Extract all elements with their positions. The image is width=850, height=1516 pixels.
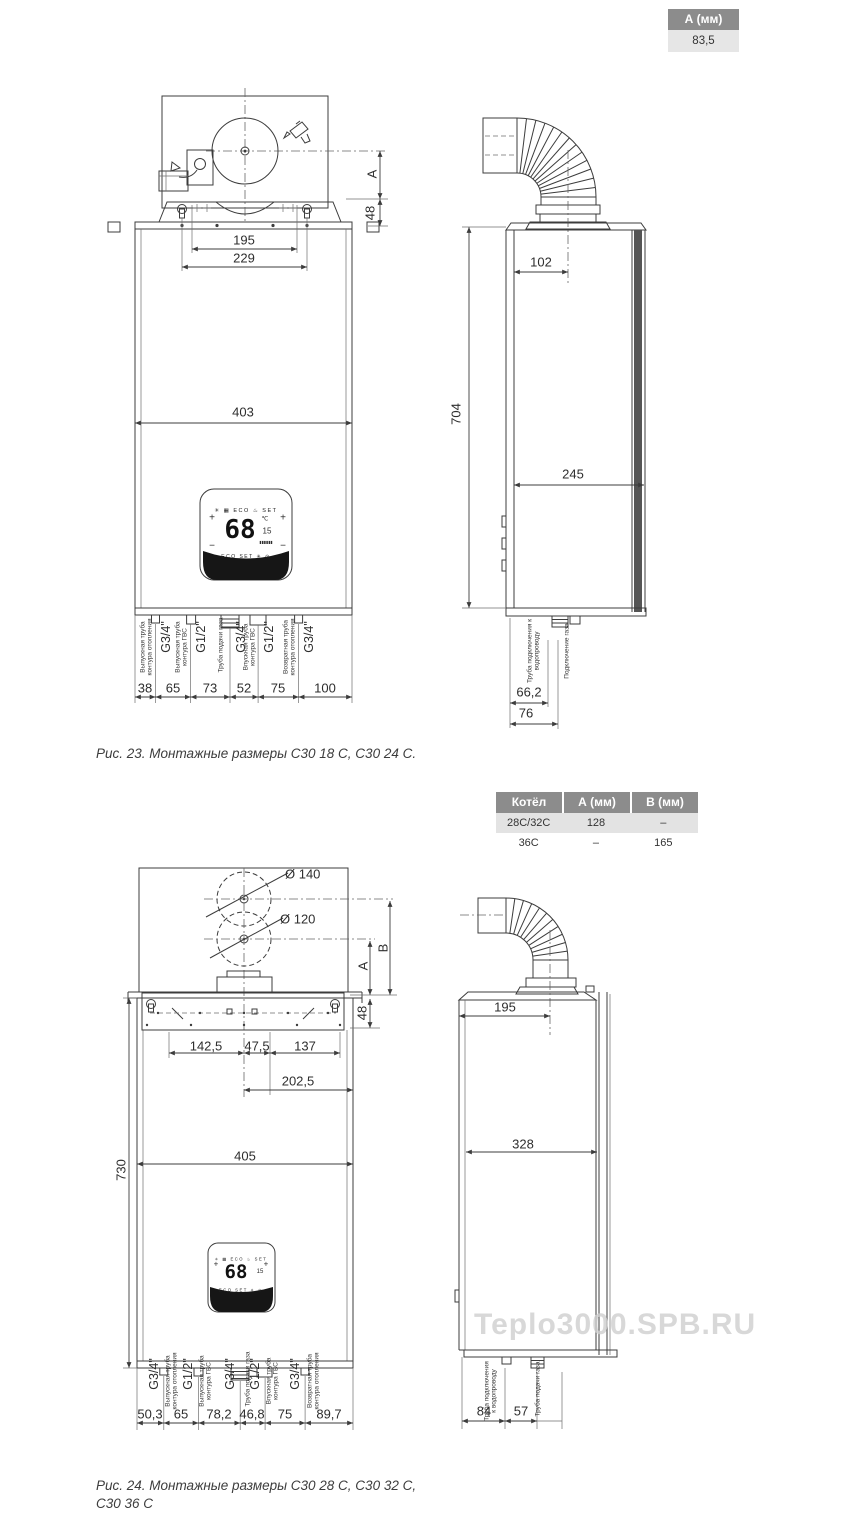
fig23-front-drawing xyxy=(108,88,388,703)
fig24-dim-195-label: 195 xyxy=(494,1000,516,1015)
table-cell: 36C xyxy=(496,833,561,853)
fig24-caption-line1: Рис. 24. Монтажные размеры С30 28 С, С30… xyxy=(96,1477,526,1495)
fig23-dim-102-label: 102 xyxy=(530,255,552,270)
fig23-dim-a-label: A xyxy=(365,170,380,179)
fig24-display-sub-value: 15 xyxy=(257,1269,264,1275)
fig23-dim-48-label: 48 xyxy=(363,206,378,220)
fig24-dim: 65 xyxy=(174,1407,188,1422)
fig24-front-drawing xyxy=(123,868,397,1430)
fig24-dim-47-5-label: 47,5 xyxy=(244,1039,269,1054)
fig23-dim: 75 xyxy=(271,681,285,696)
fig23-flue-elbow-ribs xyxy=(517,118,596,197)
fig23-dim: 65 xyxy=(166,681,180,696)
fig24-pipe-size: G3/4" xyxy=(288,1358,302,1390)
fig23-dim: 73 xyxy=(203,681,217,696)
fig23-pipe-desc: Выпускная труба контура отопления xyxy=(140,616,155,678)
fig23-water-pipe-label: Труба подключения к водопроводу xyxy=(527,618,542,684)
watermark: Teplo3000.SPB.RU xyxy=(474,1308,756,1342)
fig24-pipe-size: G1/2" xyxy=(181,1358,195,1390)
fig23-wall-rail xyxy=(634,230,642,612)
fig23-display-minus-left: − xyxy=(209,541,215,552)
fig24-dim-202-5-label: 202,5 xyxy=(282,1074,315,1089)
fig23-pipe-desc: Труба подачи газа xyxy=(217,616,224,674)
table-cell: – xyxy=(631,813,696,833)
fig23-dim-245-label: 245 xyxy=(562,467,584,482)
fig23-display-minus-right: − xyxy=(280,541,286,552)
fig23-pipe-size: G1/2" xyxy=(262,621,276,653)
boiler-table-header: Котёл xyxy=(496,792,562,813)
fig23-pipe-size: G3/4" xyxy=(159,621,173,653)
table-row: 28C/32C 128 – xyxy=(496,813,698,833)
fig23-display-bottom-icons: ECO SET ✳ ⊙ xyxy=(221,554,271,560)
flue-offset-table-value: 83,5 xyxy=(668,30,739,52)
fig23-display-plus-left: + xyxy=(209,513,215,524)
fig23-caption: Рис. 23. Монтажные размеры С30 18 С, С30… xyxy=(96,745,526,763)
fig24-side-drawing xyxy=(455,898,617,1429)
fig24-display-plus-left: + xyxy=(214,1260,219,1269)
fig23-dim-66-2-label: 66,2 xyxy=(516,685,541,700)
fig23-bracket-hooks xyxy=(178,205,312,219)
fig24-plate-hooks xyxy=(147,1000,340,1013)
boiler-dimensions-table: Котёл А (мм) В (мм) 28C/32C 128 – 36C – … xyxy=(496,792,698,853)
drill-icon xyxy=(284,121,310,143)
fig24-dim: 75 xyxy=(278,1407,292,1422)
boiler-table-header-row: Котёл А (мм) В (мм) xyxy=(496,792,698,813)
fig24-dim-a-label: A xyxy=(356,962,371,971)
fig24-display-value: 68 xyxy=(225,1261,248,1283)
fig24-display-bottom-icons: ECO SET ✳ ⊙ xyxy=(219,1288,263,1293)
fig24-dim-b-label: B xyxy=(376,944,391,953)
fig23-display-plus-right: + xyxy=(280,513,286,524)
table-cell: 165 xyxy=(631,833,696,853)
fig23-gas-pipe-label: Подключение газа xyxy=(563,618,570,684)
fig24-dim-57-label: 57 xyxy=(514,1404,528,1419)
fig24-gas-pipe-label: Труба подачи газа xyxy=(534,1359,541,1419)
boiler-table-header: В (мм) xyxy=(632,792,698,813)
fig23-pipe-desc: Возвратная труба контура отопления xyxy=(283,616,298,678)
table-cell: 28C/32C xyxy=(496,813,561,833)
flue-offset-table-header: А (мм) xyxy=(668,9,739,30)
fig24-display-plus-right: + xyxy=(264,1260,269,1269)
fig24-dim-405-label: 405 xyxy=(234,1149,256,1164)
table-cell: 128 xyxy=(563,813,628,833)
fig23-pipe-size: G3/4" xyxy=(302,621,316,653)
fig23-display-bars: ▮▮▮▮▮▮ xyxy=(259,540,272,545)
fig24-dim-137-label: 137 xyxy=(294,1039,316,1054)
fig23-side-drawing xyxy=(462,118,646,729)
fig24-caption: Рис. 24. Монтажные размеры С30 28 С, С30… xyxy=(96,1477,526,1513)
fig24-pipe-size: G3/4" xyxy=(223,1358,237,1390)
fig24-pipe-desc: Выпускная труба контура ГВС xyxy=(199,1351,214,1411)
fig24-d120-label: Ø 120 xyxy=(280,912,315,927)
fig23-dim-229-label: 229 xyxy=(233,251,255,266)
wall-anchor-icon xyxy=(159,150,213,191)
fig23-flue-duct xyxy=(483,118,517,173)
fig23-dim-195-label: 195 xyxy=(233,233,255,248)
fig24-dim-328-label: 328 xyxy=(512,1137,534,1152)
table-cell: – xyxy=(563,833,628,853)
fig24-flue-duct xyxy=(478,898,506,933)
fig24-pipe-desc: Впускная труба контура ГВС xyxy=(266,1351,281,1411)
fig24-pipe-desc: Выпускная труба контура отопления xyxy=(165,1351,180,1411)
fig24-dim-142-5-label: 142,5 xyxy=(190,1039,223,1054)
page: { "top_table": { "header": "А (мм)", "va… xyxy=(0,0,850,1516)
fig23-pipe-desc: Выпускная труба контура ГВС xyxy=(175,616,190,678)
fig24-dim-48-label: 48 xyxy=(355,1006,370,1020)
fig24-pipe-size: G3/4" xyxy=(147,1358,161,1390)
fig23-display-value: 68 xyxy=(224,515,255,545)
fig24-pipe-desc: Возвратная труба контура отопления xyxy=(307,1351,322,1411)
fig23-display-sub-value: 15 xyxy=(263,527,272,536)
fig23-dim-76-label: 76 xyxy=(519,706,533,721)
boiler-table-header: А (мм) xyxy=(564,792,630,813)
fig23-display-top-icons: ✳ ▦ ECO ♨ SET xyxy=(215,508,278,514)
fig24-dim-84-label: 84 xyxy=(477,1404,491,1419)
fig24-dim: 89,7 xyxy=(316,1407,341,1422)
fig24-pipe-size: G1/2" xyxy=(248,1358,262,1390)
fig24-d140-label: Ø 140 xyxy=(285,867,320,882)
fig24-template-sheet xyxy=(139,868,348,992)
fig23-dim: 38 xyxy=(138,681,152,696)
fig23-dim: 100 xyxy=(314,681,336,696)
fig23-mounting-bracket xyxy=(159,202,341,222)
fig24-caption-line2: С30 36 С xyxy=(96,1495,526,1513)
fig24-dim: 46,8 xyxy=(239,1407,264,1422)
fig24-flue-elbow-ribs xyxy=(506,898,568,960)
fig24-dim: 78,2 xyxy=(206,1407,231,1422)
fig23-pipe-size: G1/2" xyxy=(194,621,208,653)
fig24-dim-730-label: 730 xyxy=(114,1159,129,1181)
fig23-dim-704-label: 704 xyxy=(449,403,464,425)
fig24-dim: 50,3 xyxy=(137,1407,162,1422)
fig23-pipe-desc: Впускная труба контура ГВС xyxy=(243,616,258,678)
fig23-dim: 52 xyxy=(237,681,251,696)
fig23-dim-403-label: 403 xyxy=(232,405,254,420)
table-row: 36C – 165 xyxy=(496,833,698,853)
fig23-display-temp-unit: ℃ xyxy=(262,516,269,523)
flue-offset-table: А (мм) 83,5 xyxy=(668,9,739,52)
